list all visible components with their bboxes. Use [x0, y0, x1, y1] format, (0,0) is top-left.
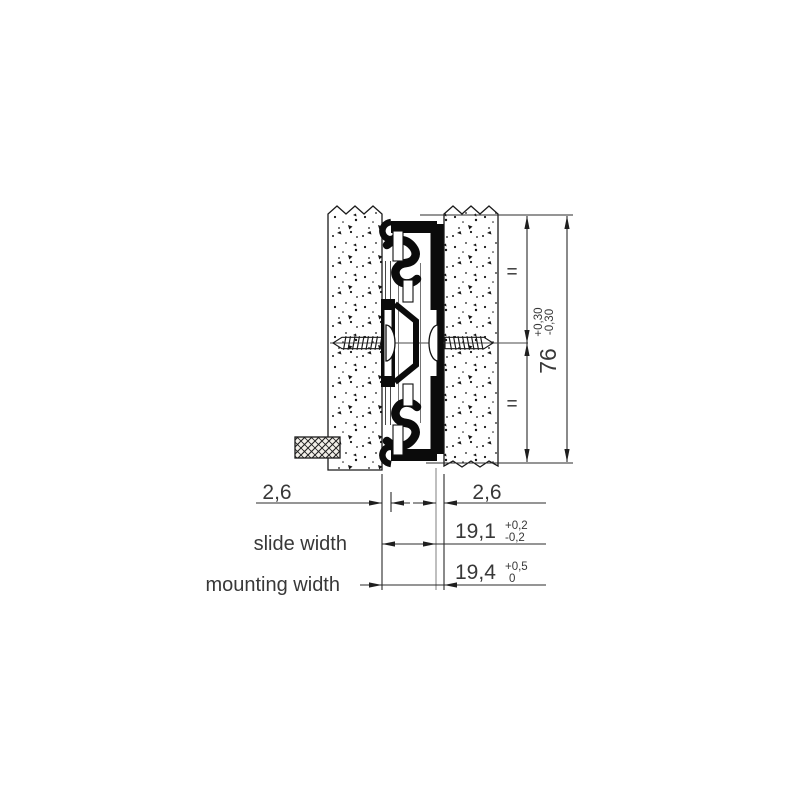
height-value: 76: [535, 348, 561, 374]
dim-height-outer: 76 +0,30 -0,30: [533, 216, 570, 462]
technical-drawing-page: 2,6 2,6 slide width 19,1 +0,2 -0,2 mount…: [0, 0, 800, 800]
left-clearance-value: 2,6: [262, 481, 291, 504]
height-tol-lower: -0,30: [544, 309, 556, 335]
slide-width-value: 19,1: [455, 520, 496, 543]
slide-width-label: slide width: [254, 533, 347, 555]
dim-mounting-width: mounting width 19,4 +0,5 0: [205, 561, 546, 596]
mounting-width-tol-lower: 0: [509, 573, 515, 585]
mounting-width-value: 19,4: [455, 561, 496, 584]
dim-slide-width: slide width 19,1 +0,2 -0,2: [254, 520, 546, 555]
right-clearance-value: 2,6: [472, 481, 501, 504]
hatched-strip-section: [295, 437, 340, 458]
slide-width-tol-upper: +0,2: [505, 520, 528, 532]
equality-mark-top: =: [506, 262, 517, 283]
mounting-width-label: mounting width: [205, 574, 340, 596]
mounting-width-tol-upper: +0,5: [505, 561, 528, 573]
technical-drawing: 2,6 2,6 slide width 19,1 +0,2 -0,2 mount…: [0, 0, 800, 800]
dim-height-inner: = =: [506, 216, 529, 462]
dim-left-clearance: 2,6: [256, 481, 410, 506]
slide-width-tol-lower: -0,2: [505, 532, 525, 544]
equality-mark-bottom: =: [506, 394, 517, 415]
dim-right-clearance: 2,6: [413, 481, 546, 506]
